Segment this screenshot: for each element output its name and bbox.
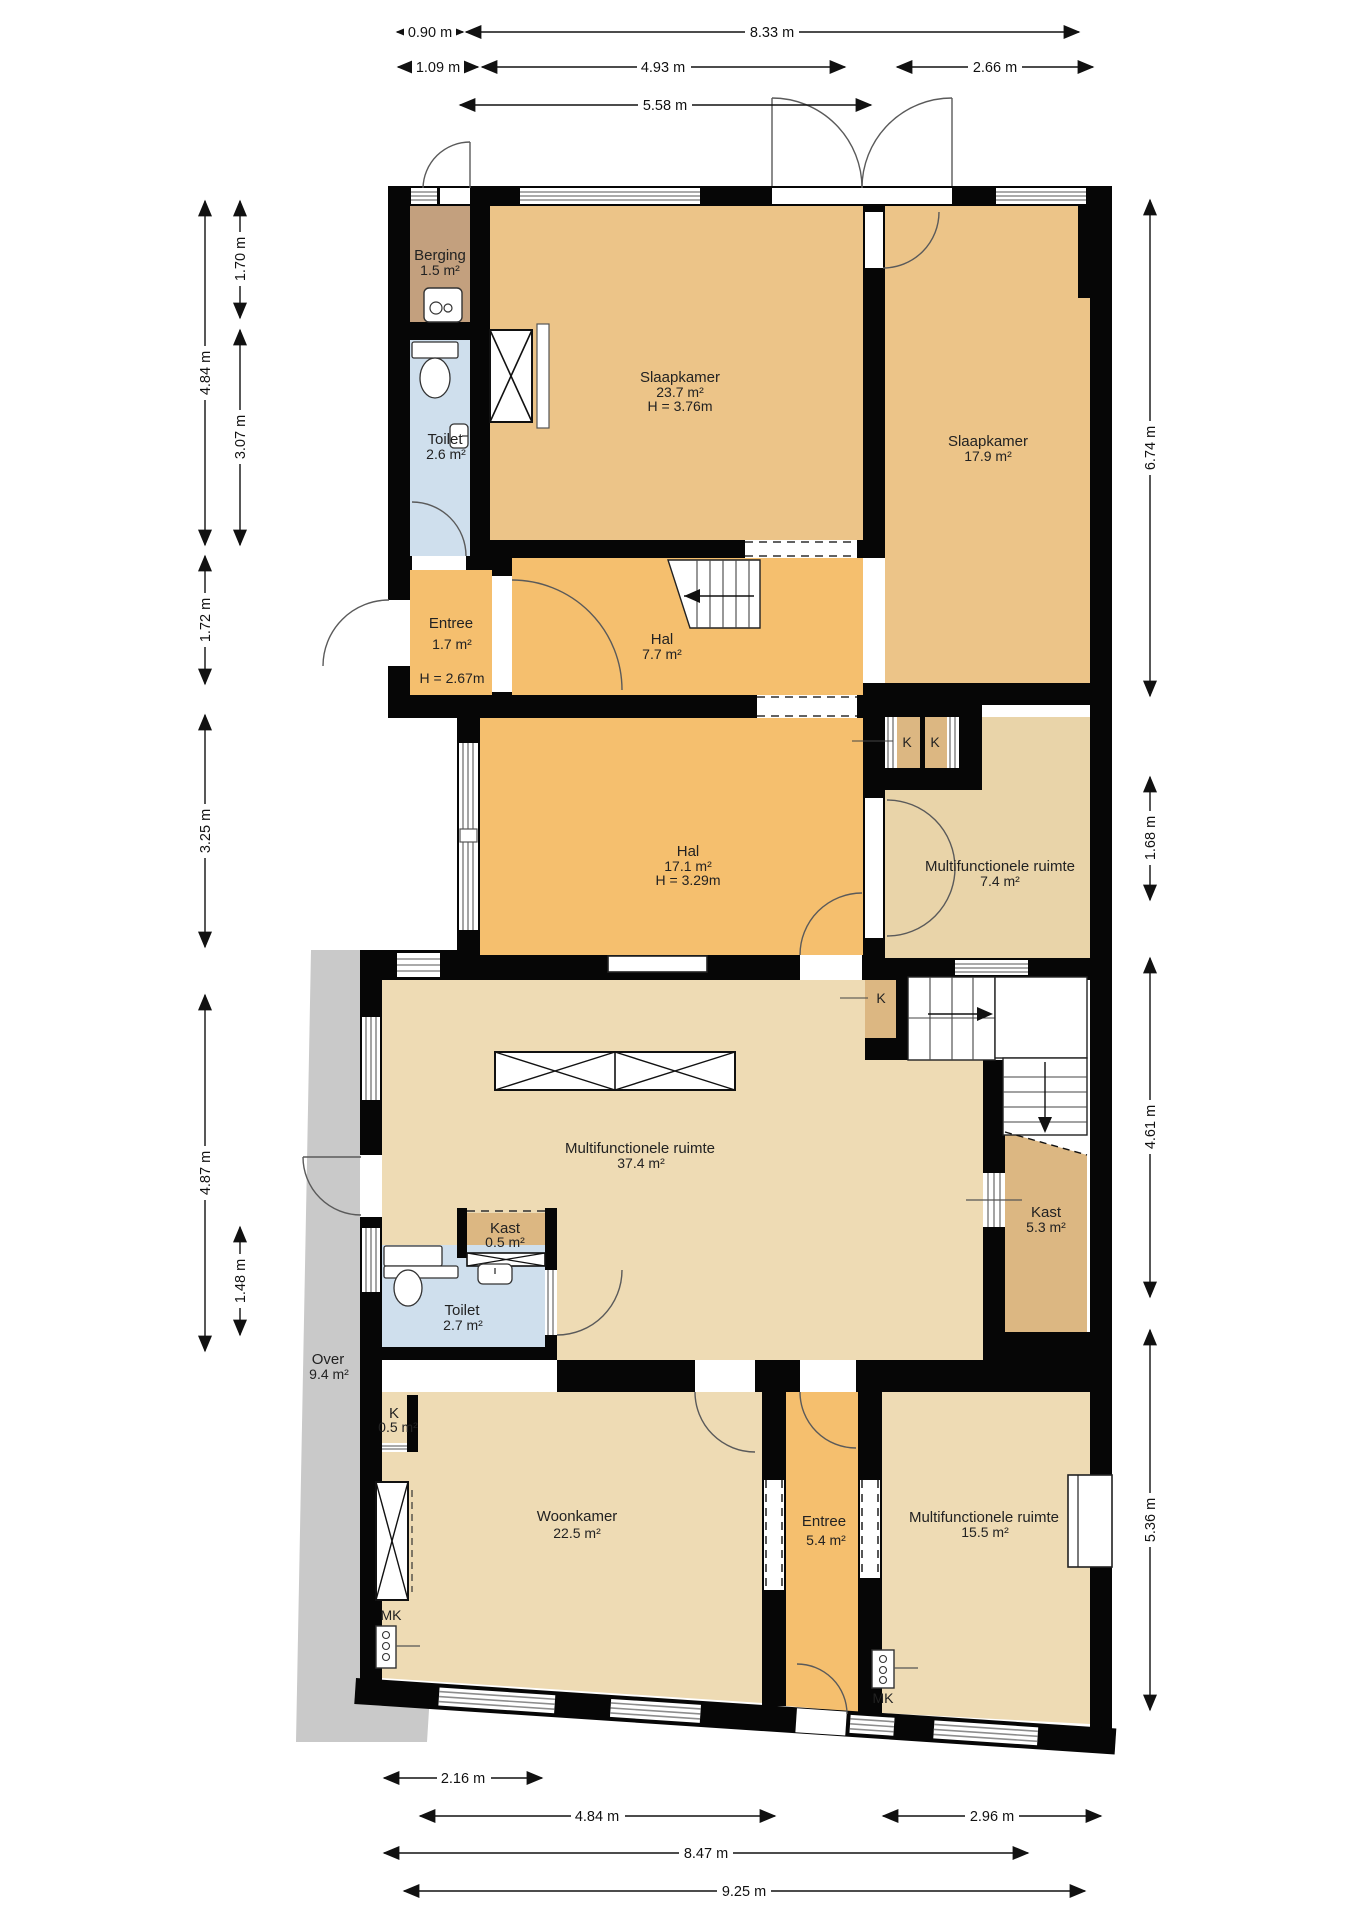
room-fill-hal-midden	[480, 713, 863, 958]
open-passage	[745, 540, 857, 558]
dim-bottom-925: 9.25 m	[722, 1884, 766, 1900]
shaft-icon	[495, 1052, 735, 1090]
closet-label-k3: K	[876, 990, 886, 1006]
closet-label-k2: K	[930, 734, 940, 750]
room-fill-k3	[865, 978, 896, 1038]
door-gap	[695, 1360, 755, 1392]
wall	[457, 1208, 467, 1258]
room-area-toilet-beneden: 2.7 m²	[443, 1317, 483, 1333]
sink-icon	[478, 1264, 512, 1284]
door-gap	[885, 717, 897, 768]
door-gap	[545, 1270, 557, 1335]
door-arc	[323, 600, 389, 666]
wall	[983, 1332, 1112, 1360]
room-area-toilet-boven: 2.6 m²	[426, 446, 466, 462]
room-area-hal-boven: 7.7 m²	[642, 646, 682, 662]
open-passage	[860, 1480, 880, 1578]
room-area-woonkamer: 22.5 m²	[553, 1525, 601, 1541]
room-label-entree-beneden: Entree	[802, 1513, 846, 1530]
wall	[863, 683, 1112, 705]
room-height-hal-midden: H = 3.29m	[656, 872, 721, 888]
dim-left-487: 4.87 m	[198, 1151, 214, 1195]
dim-left-325: 3.25 m	[198, 809, 214, 853]
window-icon	[520, 188, 700, 204]
dim-right-536: 5.36 m	[1143, 1498, 1159, 1542]
door-arc	[772, 98, 952, 188]
boiler-icon	[424, 288, 462, 322]
dim-bottom-296: 2.96 m	[970, 1809, 1014, 1825]
room-area-berging: 1.5 m²	[420, 262, 460, 278]
dim-top-493: 4.93 m	[641, 60, 685, 76]
window-icon	[947, 717, 959, 768]
dim-top-109: 1.09 m	[416, 60, 460, 76]
dim-left-307: 3.07 m	[233, 415, 249, 459]
room-area-entree-beneden: 5.4 m²	[806, 1532, 846, 1548]
dim-left-172: 1.72 m	[198, 598, 214, 642]
wall	[865, 1038, 908, 1060]
window-niche	[1068, 1475, 1112, 1567]
door-gap	[412, 556, 466, 570]
door-gap	[360, 1155, 382, 1217]
dim-top-090: 0.90 m	[408, 25, 452, 41]
dim-right-168: 1.68 m	[1143, 816, 1159, 860]
door-gap	[865, 212, 883, 268]
dim-bottom-847: 8.47 m	[684, 1846, 728, 1862]
room-label-entree-boven: Entree	[429, 615, 473, 632]
door-gap	[865, 798, 883, 938]
window-icon	[955, 960, 1028, 975]
wall	[470, 204, 490, 558]
room-height-entree-boven: H = 2.67m	[420, 670, 485, 686]
room-area-kast-trap: 5.3 m²	[1026, 1219, 1066, 1235]
door-gap	[492, 576, 512, 692]
dim-top-266: 2.66 m	[973, 60, 1017, 76]
dim-right-674: 6.74 m	[1143, 426, 1159, 470]
dim-right-461: 4.61 m	[1143, 1105, 1159, 1149]
room-area-over: 9.4 m²	[309, 1366, 349, 1382]
window-icon	[411, 188, 437, 204]
dim-top-558: 5.58 m	[643, 98, 687, 114]
wall	[920, 717, 925, 768]
room-height-slaapkamer-groot: H = 3.76m	[648, 398, 713, 414]
open-passage	[764, 1480, 784, 1590]
door-gap	[800, 955, 862, 980]
door-arc	[423, 142, 470, 188]
shaft-icon	[376, 1482, 412, 1600]
window-icon	[849, 1715, 894, 1736]
dim-left-148: 1.48 m	[233, 1259, 249, 1303]
front-door-gap	[795, 1708, 846, 1735]
dim-bottom-484: 4.84 m	[575, 1809, 619, 1825]
window-icon	[362, 1017, 380, 1100]
dim-left-484: 4.84 m	[198, 351, 214, 395]
wall	[360, 1347, 557, 1360]
wall-niche	[608, 956, 707, 972]
room-fill-mf-onder	[882, 1392, 1090, 1724]
room-area-mf-groot: 37.4 m²	[617, 1155, 665, 1171]
room-label-woonkamer: Woonkamer	[537, 1508, 618, 1525]
window-icon	[459, 743, 478, 930]
floorplan-canvas: Berging 1.5 m² Toilet 2.6 m² Slaapkamer …	[0, 0, 1358, 1920]
dim-bottom-216: 2.16 m	[441, 1771, 485, 1787]
dim-top-833: 8.33 m	[750, 25, 794, 41]
floorplan-page: Berging 1.5 m² Toilet 2.6 m² Slaapkamer …	[0, 0, 1358, 1920]
door-gap	[440, 188, 470, 204]
room-area-k-klein: 0.5 m²	[378, 1419, 418, 1435]
door-gap	[388, 600, 410, 666]
window-icon	[362, 1228, 380, 1292]
room-area-slaapkamer-klein: 17.9 m²	[964, 448, 1012, 464]
room-area-mf-klein: 7.4 m²	[980, 873, 1020, 889]
door-gap	[382, 1443, 407, 1452]
shaft-icon	[490, 324, 549, 428]
dim-left-170: 1.70 m	[233, 237, 249, 281]
window-icon	[397, 953, 440, 977]
room-fill-entree-beneden	[786, 1392, 858, 1712]
wall	[885, 768, 960, 790]
open-passage	[757, 695, 857, 718]
room-area-entree-boven: 1.7 m²	[432, 636, 472, 652]
room-fill-woonkamer	[382, 1392, 762, 1703]
closet-label-mk1: MK	[381, 1607, 403, 1623]
closet-label-mk2: MK	[873, 1690, 895, 1706]
door-gap	[772, 188, 952, 204]
room-area-mf-onder: 15.5 m²	[961, 1524, 1009, 1540]
window-icon	[996, 188, 1086, 204]
room-area-kast-klein: 0.5 m²	[485, 1234, 525, 1250]
closet-label-k1: K	[902, 734, 912, 750]
door-gap	[800, 1360, 856, 1392]
wall	[959, 705, 982, 790]
